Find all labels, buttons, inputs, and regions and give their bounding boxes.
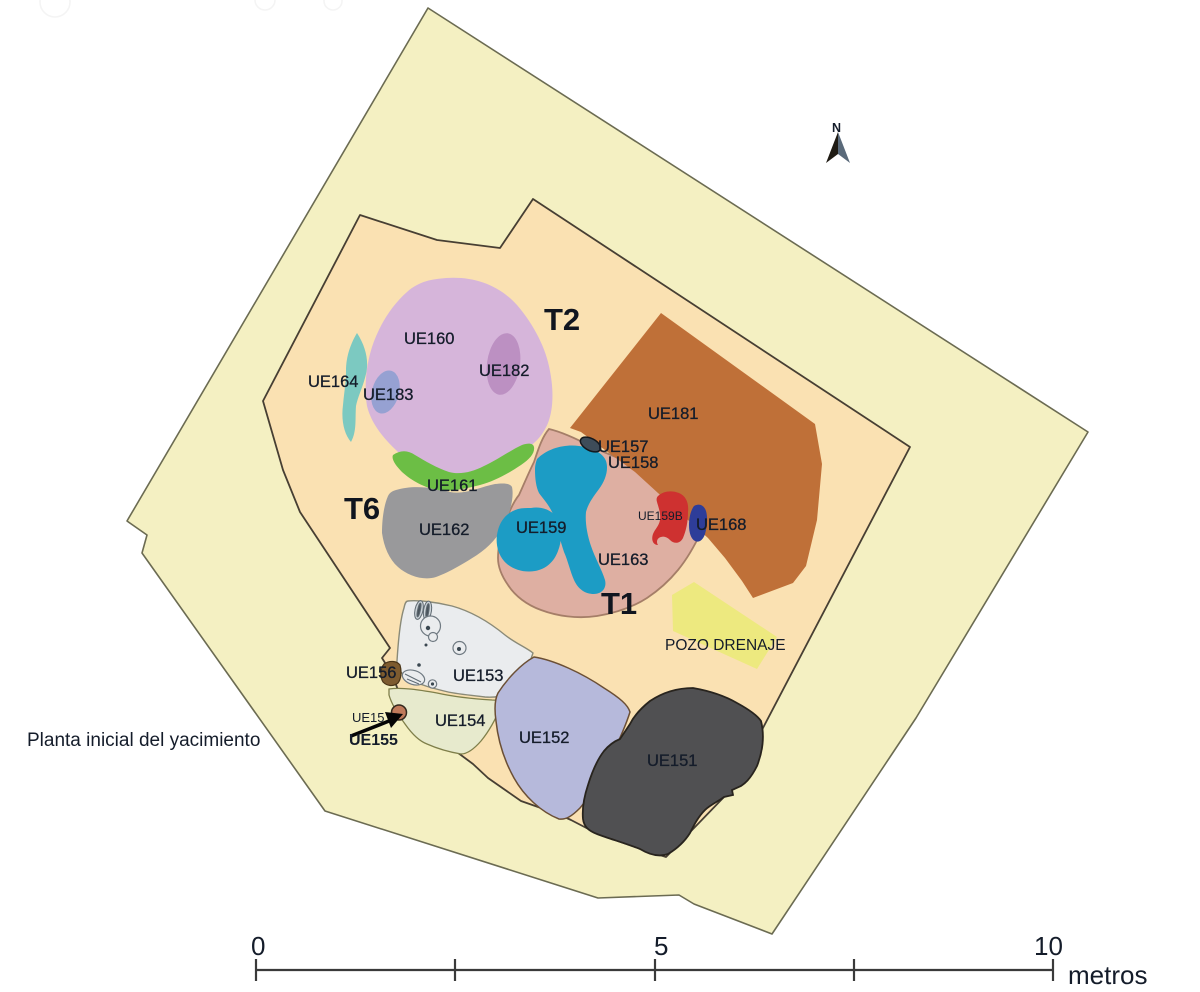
svg-text:UE164: UE164 [308,373,358,391]
svg-text:T6: T6 [344,491,380,526]
svg-text:Planta inicial del yacimiento: Planta inicial del yacimiento [27,730,260,751]
svg-text:POZO DRENAJE: POZO DRENAJE [665,637,786,654]
svg-text:UE163: UE163 [598,551,648,569]
svg-text:UE155: UE155 [349,732,398,749]
svg-text:UE158: UE158 [608,454,658,472]
svg-text:UE153: UE153 [453,667,503,685]
svg-text:UE181: UE181 [648,405,698,423]
svg-text:UE156: UE156 [346,664,396,682]
svg-text:UE162: UE162 [419,521,469,539]
svg-text:UE151: UE151 [647,752,697,770]
svg-text:UE159B: UE159B [638,509,683,523]
svg-text:UE152: UE152 [519,729,569,747]
svg-text:T1: T1 [601,586,637,621]
svg-text:UE182: UE182 [479,362,529,380]
svg-text:UE159: UE159 [516,519,566,537]
svg-text:10: 10 [1034,931,1063,961]
svg-text:UE154: UE154 [435,712,485,730]
svg-text:metros: metros [1068,960,1147,990]
svg-text:5: 5 [654,931,668,961]
svg-text:0: 0 [251,931,265,961]
svg-text:UE160: UE160 [404,330,454,348]
svg-text:T2: T2 [544,302,580,337]
svg-text:UE15: UE15 [352,710,385,725]
svg-text:UE183: UE183 [363,386,413,404]
svg-text:UE168: UE168 [696,516,746,534]
svg-text:N: N [832,121,841,135]
svg-text:UE161: UE161 [427,477,477,495]
